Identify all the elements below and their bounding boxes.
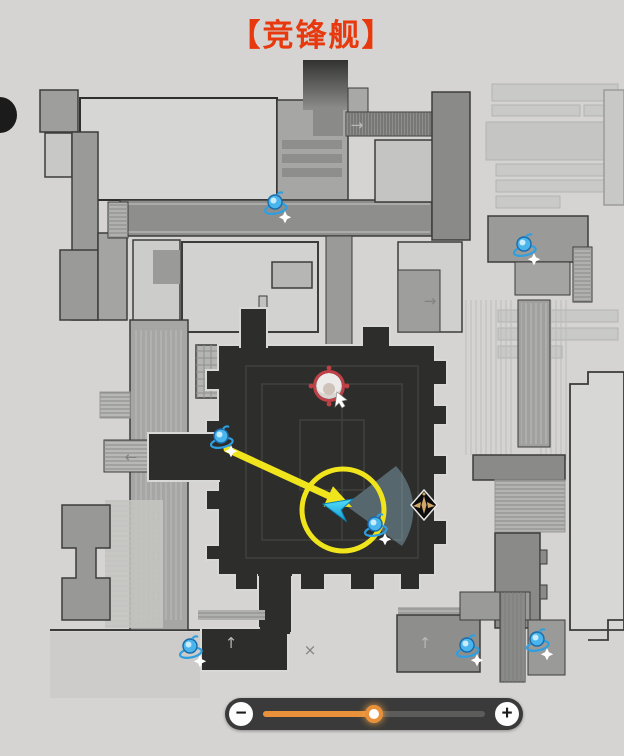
zoom-slider-track[interactable] <box>263 711 485 717</box>
zoom-slider-fill <box>263 711 374 717</box>
map-title: 【竞锋舰】 <box>0 10 624 55</box>
direction-arrow: → <box>424 292 437 310</box>
direction-arrow: ↑ <box>225 634 238 652</box>
zoom-in-button[interactable]: + <box>495 702 519 726</box>
zoom-slider-knob[interactable] <box>365 705 383 723</box>
direction-arrow: ← <box>125 448 138 466</box>
direction-arrow: → <box>351 116 364 134</box>
direction-arrow: ↑ <box>419 634 432 652</box>
map-canvas[interactable]: →→←↑↑× <box>0 0 624 756</box>
direction-arrow: × <box>304 641 317 659</box>
zoom-slider[interactable]: − + <box>225 698 523 730</box>
zoom-out-button[interactable]: − <box>229 702 253 726</box>
